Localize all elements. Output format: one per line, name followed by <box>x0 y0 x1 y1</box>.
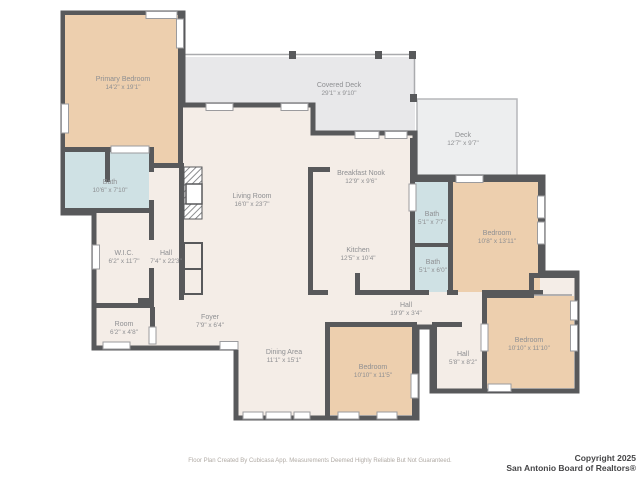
room-label-kitchen: Kitchen12'5" x 10'4" <box>340 246 375 263</box>
room-label-hall-west: Hall7'4" x 22'3" <box>150 249 182 266</box>
room-label-bedroom-east: Bedroom10'8" x 13'11" <box>478 229 516 246</box>
room-label-hall-center: Hall19'9" x 3'4" <box>390 301 422 318</box>
floor-plan-canvas: Primary Bedroom14'2" x 19'1" Bath10'6" x… <box>0 0 640 480</box>
room-label-bath-main: Bath10'6" x 7'10" <box>92 178 127 195</box>
copyright-line2: San Antonio Board of Realtors® <box>506 463 636 473</box>
fireplace-icon <box>184 167 202 219</box>
room-label-foyer: Foyer7'9" x 6'4" <box>196 313 224 330</box>
room-label-living-room: Living Room16'0" x 23'7" <box>233 192 272 209</box>
hall-closets <box>184 243 202 294</box>
room-label-covered-deck: Covered Deck29'1" x 9'10" <box>317 81 361 98</box>
floor-plan-drawing <box>0 0 640 480</box>
room-label-deck: Deck12'7" x 9'7" <box>447 131 479 148</box>
room-label-primary-bedroom: Primary Bedroom14'2" x 19'1" <box>96 75 150 92</box>
room-label-dining-area: Dining Area11'1" x 15'1" <box>266 348 302 365</box>
room-label-bedroom-southeast: Bedroom10'10" x 11'10" <box>508 336 550 353</box>
room-label-bath-upper: Bath5'1" x 7'7" <box>418 210 446 227</box>
room-label-room: Room6'2" x 4'8" <box>110 320 138 337</box>
copyright-text: Copyright 2025 San Antonio Board of Real… <box>506 453 636 473</box>
room-label-bath-lower: Bath5'1" x 6'0" <box>419 258 447 275</box>
copyright-line1: Copyright 2025 <box>506 453 636 463</box>
room-label-wic: W.I.C.6'2" x 11'7" <box>108 249 139 266</box>
room-label-bedroom-south: Bedroom10'10" x 11'5" <box>354 363 392 380</box>
room-label-breakfast-nook: Breakfast Nook12'9" x 9'6" <box>337 169 385 186</box>
room-label-hall-south: Hall5'8" x 8'2" <box>449 350 477 367</box>
